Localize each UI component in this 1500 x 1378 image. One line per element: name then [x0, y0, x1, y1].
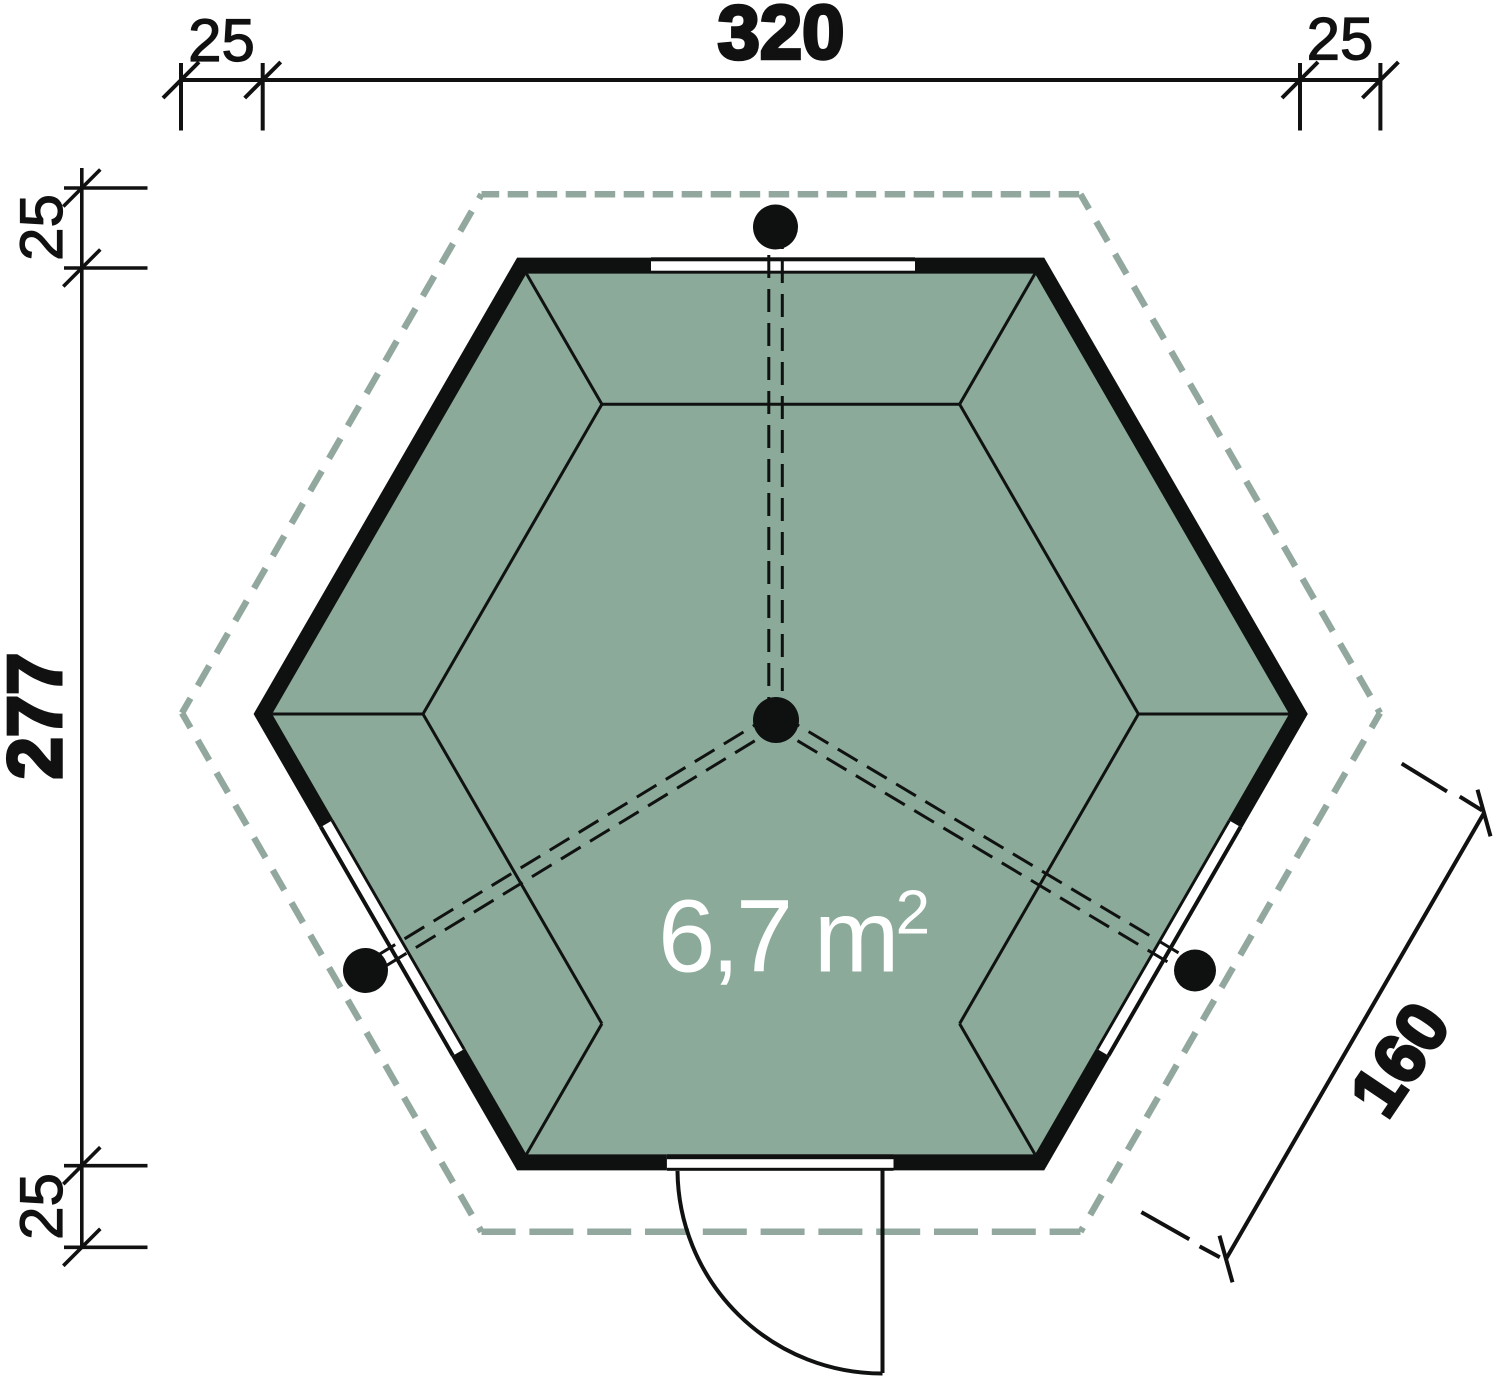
svg-text:25: 25 — [1307, 6, 1374, 73]
svg-text:277: 277 — [0, 653, 78, 780]
svg-text:25: 25 — [8, 194, 75, 261]
svg-text:6,7 m2: 6,7 m2 — [658, 879, 928, 994]
svg-text:25: 25 — [188, 7, 255, 74]
svg-text:320: 320 — [718, 0, 845, 76]
svg-text:25: 25 — [8, 1173, 75, 1240]
